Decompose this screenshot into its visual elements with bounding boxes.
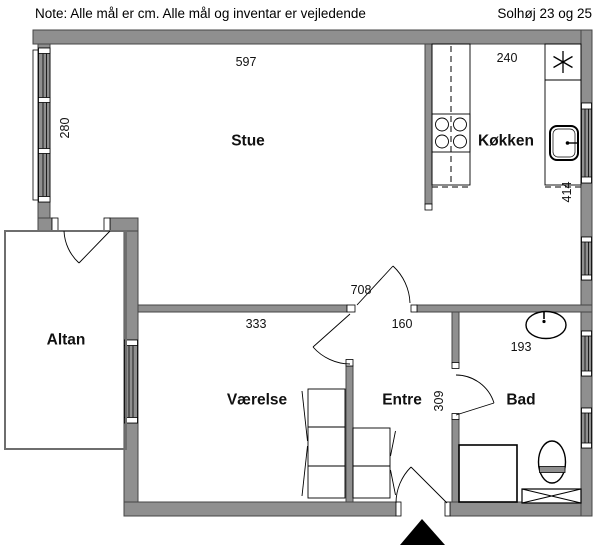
floor-grate-icon [522, 489, 581, 503]
shower-area [459, 445, 517, 502]
dim-kokken-width: 240 [497, 51, 518, 65]
dim-bad-width: 193 [511, 340, 532, 354]
door-vaerelse [313, 314, 350, 364]
kitchen-sink [550, 126, 579, 160]
closet-entre [353, 428, 396, 498]
floor-plan-page: Note: Alle mål er cm. Alle mål og invent… [0, 0, 600, 546]
cooker-hood-icon [554, 51, 573, 73]
room-label-altan: Altan [47, 332, 86, 349]
walls [33, 30, 592, 516]
dim-kokken-depth: 414 [560, 182, 574, 203]
bathroom-sink [526, 312, 566, 339]
dim-entre-width: 160 [392, 317, 413, 331]
dim-stue-width: 597 [236, 55, 257, 69]
floor-plan-svg: 597 280 Stue 240 Køkken 414 708 333 160 … [0, 0, 600, 546]
door-jambs [52, 204, 459, 517]
room-label-vaerelse: Værelse [227, 392, 288, 409]
door-bad [456, 375, 494, 415]
kitchen-counter-left [432, 44, 470, 187]
room-label-entre: Entre [382, 392, 422, 409]
dim-vaerelse-width: 333 [246, 317, 267, 331]
door-front [396, 467, 447, 503]
door-altan [64, 231, 110, 263]
toilet [539, 441, 566, 483]
stove-icon [436, 118, 467, 148]
dim-total-width: 708 [351, 283, 372, 297]
room-label-kokken: Køkken [478, 133, 534, 150]
room-label-bad: Bad [506, 392, 535, 409]
closet-vaerelse [302, 389, 345, 498]
dim-entre-depth: 309 [432, 391, 446, 412]
room-label-stue: Stue [231, 133, 265, 150]
dim-stue-depth: 280 [58, 118, 72, 139]
entrance-arrow-icon [400, 519, 445, 545]
